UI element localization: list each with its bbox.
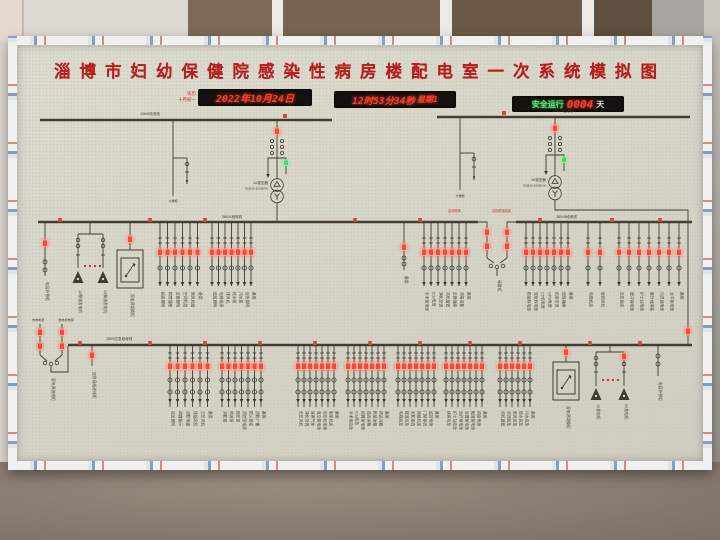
board-frame-right (703, 36, 712, 470)
concrete-floor (0, 462, 720, 540)
safety-days-display: 安全运行 0004 天 (512, 96, 624, 112)
safety-days-value: 0004 (567, 98, 594, 111)
date-display: 2022年10月24日 (198, 89, 312, 106)
weekday-value: 星期1 (417, 94, 438, 105)
date-value: 2022年10月24日 (216, 90, 294, 105)
board-frame-left (8, 36, 17, 470)
time-display: 12时53分34秒 星期1 (334, 91, 456, 108)
photo-scene: 淄博市妇幼保健院感染性病房楼配电室一次系统模拟图 农历 十月初一 2022年10… (0, 0, 720, 540)
lunar-date-note: 农历 十月初一 (176, 91, 196, 102)
board-title: 淄博市妇幼保健院感染性病房楼配电室一次系统模拟图 (28, 58, 692, 82)
board-frame-bottom (8, 461, 712, 470)
board-frame-top (8, 36, 712, 45)
safety-suffix: 天 (596, 99, 604, 110)
lunar-line2: 十月初一 (176, 97, 196, 103)
safety-prefix: 安全运行 (532, 99, 564, 110)
time-value: 12时53分34秒 (352, 93, 415, 107)
